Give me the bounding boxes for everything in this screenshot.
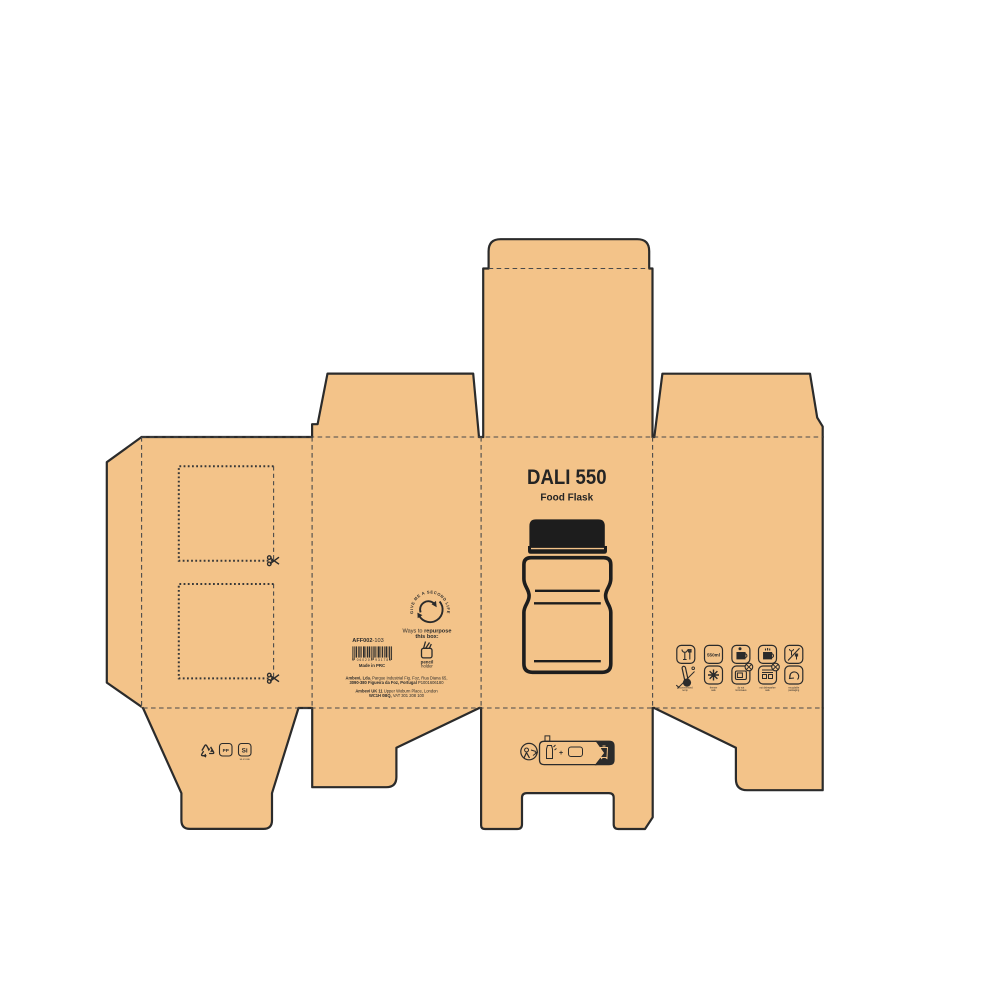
svg-text:holder: holder <box>421 664 433 669</box>
svg-text:WC1H 0BQ, VAT 301 208 100: WC1H 0BQ, VAT 301 208 100 <box>369 693 425 698</box>
svg-text:microwave: microwave <box>735 689 747 692</box>
svg-text:DALI 550: DALI 550 <box>527 465 607 489</box>
svg-text:3090-380 Figueira da Foz, Port: 3090-380 Figueira da Foz, Portugal P1001… <box>350 680 445 685</box>
svg-text:550ml: 550ml <box>707 653 720 658</box>
svg-text:this box:: this box: <box>415 634 438 640</box>
svg-text:Food Flask: Food Flask <box>540 493 593 504</box>
svg-text:SILICONE: SILICONE <box>240 759 251 761</box>
svg-text:safe: safe <box>711 689 716 692</box>
svg-text:+: + <box>559 750 563 757</box>
svg-text:PP: PP <box>223 748 229 753</box>
svg-text:packaging: packaging <box>788 689 800 692</box>
svg-text:safe: safe <box>765 689 770 692</box>
svg-text:5 060203 931786: 5 060203 931786 <box>352 658 392 662</box>
svg-text:AFF002-103: AFF002-103 <box>352 638 383 644</box>
svg-text:Si: Si <box>242 748 248 755</box>
svg-text:Made in PRC: Made in PRC <box>359 663 385 668</box>
svg-text:temp: temp <box>682 689 688 692</box>
